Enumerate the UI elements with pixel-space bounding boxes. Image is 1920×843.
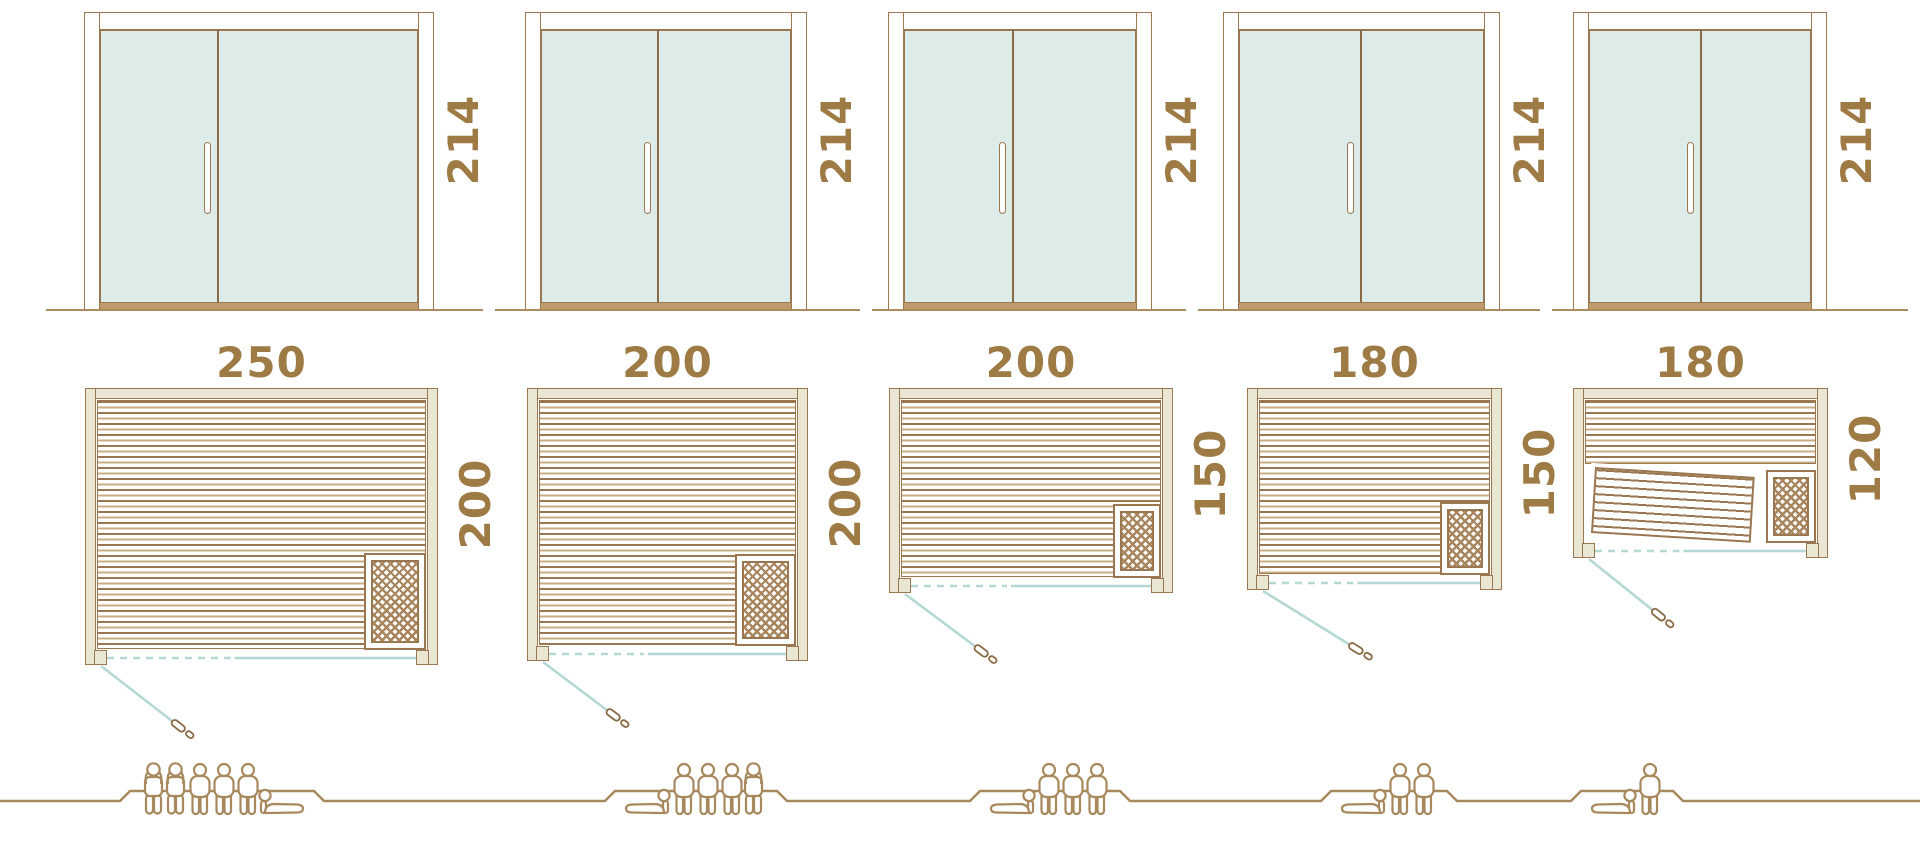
plan-wall-top xyxy=(527,388,808,399)
plan-wall-right xyxy=(1162,388,1173,593)
person-sitting-icon xyxy=(1415,764,1434,814)
heater xyxy=(1113,504,1161,578)
plan-wall-foot-left xyxy=(1256,575,1269,590)
plan-wall-foot-right xyxy=(1480,575,1493,590)
height-dimension-label: 214 xyxy=(443,95,485,186)
person-sitting-icon xyxy=(699,764,718,814)
person-lying-icon xyxy=(259,790,303,813)
plan-wall-right xyxy=(797,388,808,661)
person-sitting-icon xyxy=(191,764,210,814)
plan-wall-left xyxy=(85,388,96,665)
plan-wall-left xyxy=(1573,388,1584,558)
plan-wall-left xyxy=(527,388,538,661)
door-swing-line xyxy=(1589,559,1665,620)
door-handle-icon xyxy=(644,142,651,214)
plan-wall-right xyxy=(1491,388,1502,590)
width-dimension-label: 180 xyxy=(1329,342,1420,384)
door-frame-post-right xyxy=(791,12,807,310)
door-handle-icon xyxy=(1687,142,1694,214)
door-frame-post-right xyxy=(1484,12,1500,310)
person-standing-icon xyxy=(145,763,162,813)
plan-wall-foot-right xyxy=(1151,578,1164,593)
door-swing-line xyxy=(1263,591,1363,653)
person-sitting-icon xyxy=(1040,764,1059,814)
door-frame-header xyxy=(1588,12,1812,30)
door-handle-icon xyxy=(999,142,1006,214)
door-frame-post-right xyxy=(418,12,434,310)
person-standing-icon xyxy=(745,763,762,813)
door-frame-post-left xyxy=(888,12,904,310)
heater-grill-icon xyxy=(1773,477,1809,536)
depth-dimension-label: 150 xyxy=(1519,427,1561,518)
person-standing-icon xyxy=(167,763,184,813)
plan-wall-left xyxy=(889,388,900,593)
door-frame-header xyxy=(1238,12,1485,30)
door-divider-line xyxy=(1360,30,1362,303)
plan-wall-foot-right xyxy=(416,650,429,665)
elevation-ground-line xyxy=(1198,309,1540,312)
door-frame-post-left xyxy=(1573,12,1589,310)
person-lying-icon xyxy=(1592,790,1636,813)
door-frame-post-left xyxy=(525,12,541,310)
height-dimension-label: 214 xyxy=(1161,95,1203,186)
door-frame-post-left xyxy=(84,12,100,310)
plan-wall-top xyxy=(1573,388,1828,399)
plan-wall-foot-left xyxy=(536,646,549,661)
person-sitting-icon xyxy=(239,764,258,814)
door-frame-post-right xyxy=(1136,12,1152,310)
door-frame-header xyxy=(99,12,419,30)
elevation-ground-line xyxy=(46,309,483,312)
bench-area xyxy=(1585,400,1816,464)
person-lying-icon xyxy=(1342,790,1386,813)
heater xyxy=(1440,502,1490,575)
open-door-handle-icon xyxy=(1348,642,1373,661)
door-frame-header xyxy=(540,12,792,30)
width-dimension-label: 200 xyxy=(986,342,1077,384)
elevation-ground-line xyxy=(495,309,860,312)
height-dimension-label: 214 xyxy=(1836,95,1878,186)
door-handle-icon xyxy=(204,142,211,214)
door-handle-icon xyxy=(1347,142,1354,214)
plan-wall-top xyxy=(889,388,1173,399)
door-divider-line xyxy=(657,30,659,303)
door-divider-line xyxy=(217,30,219,303)
depth-dimension-label: 200 xyxy=(825,457,867,548)
heater xyxy=(1766,470,1816,543)
elevation-ground-line xyxy=(1552,309,1908,312)
plan-wall-top xyxy=(85,388,438,399)
person-sitting-icon xyxy=(675,764,694,814)
height-dimension-label: 214 xyxy=(816,95,858,186)
plan-wall-foot-right xyxy=(786,646,799,661)
door-frame-post-right xyxy=(1811,12,1827,310)
depth-dimension-label: 120 xyxy=(1845,414,1887,505)
person-sitting-icon xyxy=(1641,764,1660,814)
plan-wall-foot-left xyxy=(94,650,107,665)
plan-wall-left xyxy=(1247,388,1258,590)
heater-grill-icon xyxy=(1120,511,1154,571)
tilted-bench xyxy=(1591,467,1755,543)
open-door-handle-icon xyxy=(1651,607,1675,628)
door-frame-header xyxy=(903,12,1137,30)
plan-wall-right xyxy=(1817,388,1828,558)
width-dimension-label: 180 xyxy=(1655,342,1746,384)
elevation-ground-line xyxy=(872,309,1186,312)
person-sitting-icon xyxy=(215,764,234,814)
plan-wall-foot-left xyxy=(1582,543,1595,558)
door-divider-line xyxy=(1700,30,1702,303)
glass-door-panels xyxy=(100,30,418,303)
plan-wall-foot-left xyxy=(898,578,911,593)
door-divider-line xyxy=(1012,30,1014,303)
door-swing-line xyxy=(905,594,988,656)
height-dimension-label: 214 xyxy=(1509,95,1551,186)
plan-wall-top xyxy=(1247,388,1502,399)
open-door-handle-icon xyxy=(973,644,998,665)
heater xyxy=(364,553,426,650)
glass-door-panels xyxy=(541,30,791,303)
glass-door-panels xyxy=(904,30,1136,303)
width-dimension-label: 250 xyxy=(216,342,307,384)
width-dimension-label: 200 xyxy=(622,342,713,384)
heater-grill-icon xyxy=(742,561,789,639)
person-sitting-icon xyxy=(1064,764,1083,814)
person-sitting-icon xyxy=(723,764,742,814)
depth-dimension-label: 200 xyxy=(455,459,497,550)
door-swing-line xyxy=(543,662,620,720)
heater-grill-icon xyxy=(1447,509,1483,568)
person-sitting-icon xyxy=(1391,764,1410,814)
open-door-handle-icon xyxy=(605,708,630,729)
depth-dimension-label: 150 xyxy=(1190,429,1232,520)
open-door-handle-icon xyxy=(170,719,194,740)
door-frame-post-left xyxy=(1223,12,1239,310)
person-lying-icon xyxy=(991,790,1035,813)
sauna-size-diagram: 214 250 200 214 xyxy=(0,0,1920,843)
heater-grill-icon xyxy=(371,560,419,643)
person-lying-icon xyxy=(626,790,670,813)
plan-wall-right xyxy=(427,388,438,665)
heater xyxy=(735,554,796,646)
person-sitting-icon xyxy=(1088,764,1107,814)
plan-wall-foot-right xyxy=(1806,543,1819,558)
door-swing-line xyxy=(101,666,185,731)
ground-terrain-line xyxy=(0,791,1920,801)
